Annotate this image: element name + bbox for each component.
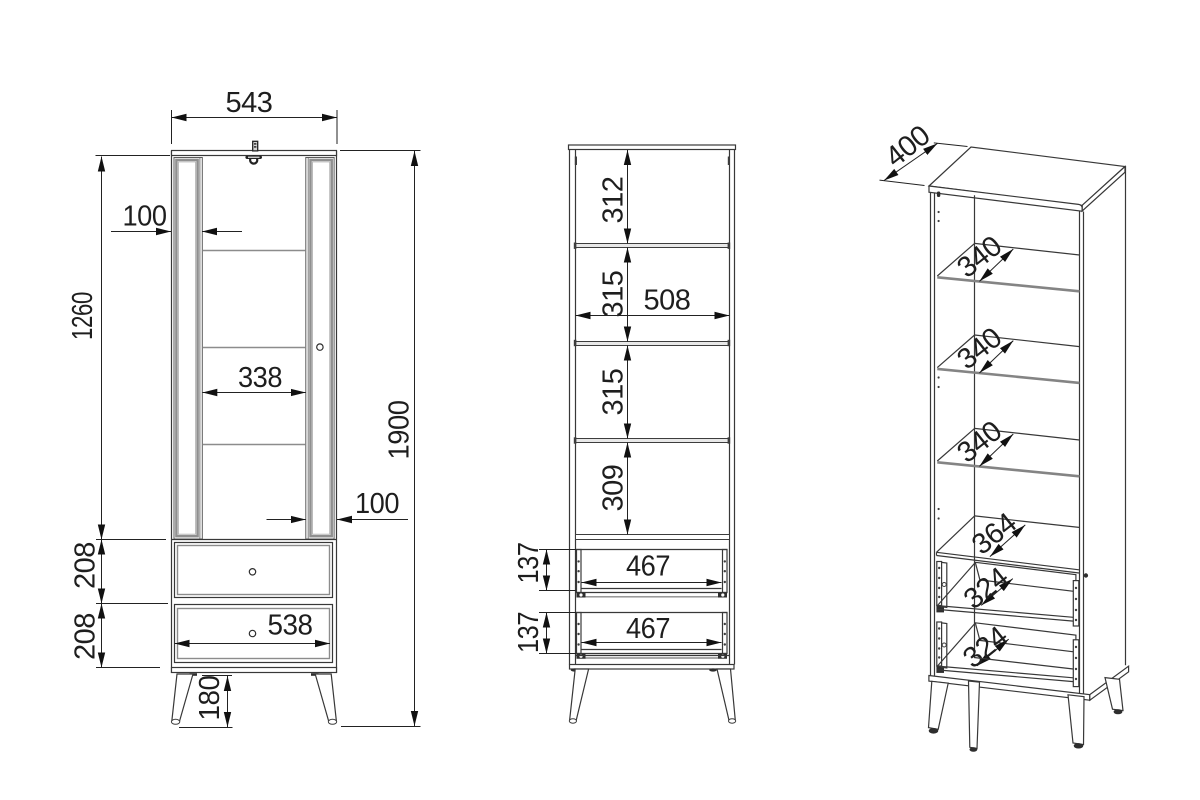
svg-text:208: 208 bbox=[70, 613, 102, 660]
svg-text:309: 309 bbox=[597, 465, 629, 512]
svg-text:467: 467 bbox=[626, 551, 670, 583]
svg-text:180: 180 bbox=[194, 676, 226, 721]
svg-text:508: 508 bbox=[644, 285, 691, 317]
svg-text:340: 340 bbox=[951, 415, 1008, 469]
svg-text:400: 400 bbox=[880, 120, 937, 174]
svg-text:338: 338 bbox=[238, 362, 282, 394]
svg-text:543: 543 bbox=[226, 87, 273, 119]
svg-text:315: 315 bbox=[597, 271, 629, 318]
svg-text:467: 467 bbox=[626, 613, 670, 645]
svg-text:137: 137 bbox=[513, 612, 545, 653]
svg-text:208: 208 bbox=[70, 542, 102, 589]
svg-text:137: 137 bbox=[513, 543, 545, 584]
svg-text:315: 315 bbox=[597, 369, 629, 416]
svg-text:340: 340 bbox=[951, 322, 1008, 376]
svg-text:1900: 1900 bbox=[384, 401, 416, 460]
svg-text:100: 100 bbox=[355, 488, 399, 520]
svg-text:100: 100 bbox=[123, 201, 167, 233]
svg-text:340: 340 bbox=[951, 230, 1008, 284]
svg-text:1260: 1260 bbox=[67, 292, 99, 340]
svg-text:312: 312 bbox=[597, 177, 629, 224]
svg-text:538: 538 bbox=[268, 610, 313, 642]
